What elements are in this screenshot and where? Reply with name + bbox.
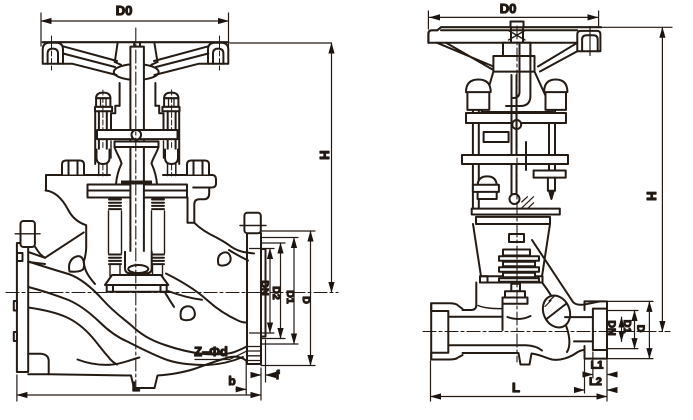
svg-text:L2: L2 [589, 376, 602, 388]
svg-text:D: D [635, 325, 647, 333]
svg-text:D1: D1 [621, 320, 633, 334]
svg-text:H: H [644, 191, 659, 200]
svg-text:DN: DN [606, 320, 618, 335]
svg-text:b: b [228, 374, 235, 388]
svg-text:D: D [300, 296, 312, 304]
svg-text:L: L [132, 379, 140, 394]
svg-text:D2: D2 [270, 286, 282, 300]
svg-text:D0: D0 [500, 1, 517, 16]
svg-text:H: H [317, 150, 332, 159]
svg-text:f: f [276, 368, 281, 382]
svg-text:D1: D1 [284, 290, 296, 304]
svg-text:DN: DN [259, 280, 271, 295]
svg-text:D0: D0 [116, 3, 133, 18]
svg-text:Z–Φd: Z–Φd [194, 344, 228, 359]
svg-text:L: L [512, 380, 520, 395]
